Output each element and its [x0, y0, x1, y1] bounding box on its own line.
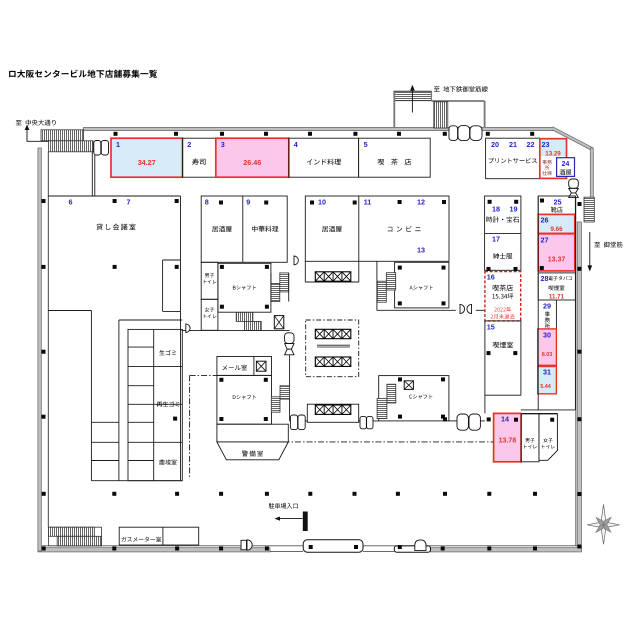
svg-text:16: 16	[487, 273, 495, 282]
svg-text:5: 5	[364, 140, 368, 149]
svg-text:8.03: 8.03	[542, 352, 553, 358]
svg-text:20: 20	[491, 140, 499, 149]
svg-text:13.37: 13.37	[548, 257, 566, 264]
svg-text:14: 14	[501, 415, 509, 424]
svg-text:6: 6	[69, 198, 73, 207]
svg-text:31: 31	[543, 368, 551, 377]
svg-text:34.27: 34.27	[138, 158, 156, 167]
svg-text:11.71: 11.71	[549, 294, 565, 301]
svg-text:27: 27	[541, 236, 549, 245]
svg-text:12: 12	[417, 198, 425, 207]
svg-text:15: 15	[487, 323, 495, 332]
svg-text:9: 9	[246, 198, 250, 207]
svg-text:28: 28	[541, 274, 549, 283]
svg-text:4: 4	[294, 140, 298, 149]
svg-text:26.46: 26.46	[243, 158, 261, 167]
svg-text:26: 26	[541, 216, 549, 225]
svg-text:11: 11	[364, 198, 372, 207]
svg-text:5.44: 5.44	[540, 384, 551, 390]
svg-text:2: 2	[187, 140, 191, 149]
svg-text:29: 29	[543, 302, 551, 311]
svg-text:18: 18	[492, 205, 500, 214]
svg-text:9.66: 9.66	[550, 226, 563, 233]
svg-text:8: 8	[205, 198, 209, 207]
svg-text:10: 10	[318, 198, 326, 207]
svg-text:25: 25	[554, 198, 562, 207]
svg-text:13.78: 13.78	[499, 438, 517, 445]
svg-text:3: 3	[221, 140, 225, 149]
svg-text:13.29: 13.29	[545, 151, 561, 158]
svg-text:24: 24	[562, 161, 570, 168]
svg-text:21: 21	[509, 140, 517, 149]
svg-text:17: 17	[492, 235, 500, 244]
svg-text:19: 19	[510, 205, 518, 214]
svg-text:22: 22	[527, 140, 535, 149]
svg-text:13: 13	[417, 246, 425, 255]
svg-text:7: 7	[127, 198, 131, 207]
svg-text:30: 30	[543, 331, 551, 340]
svg-text:1: 1	[116, 140, 120, 149]
svg-text:23: 23	[542, 140, 550, 149]
